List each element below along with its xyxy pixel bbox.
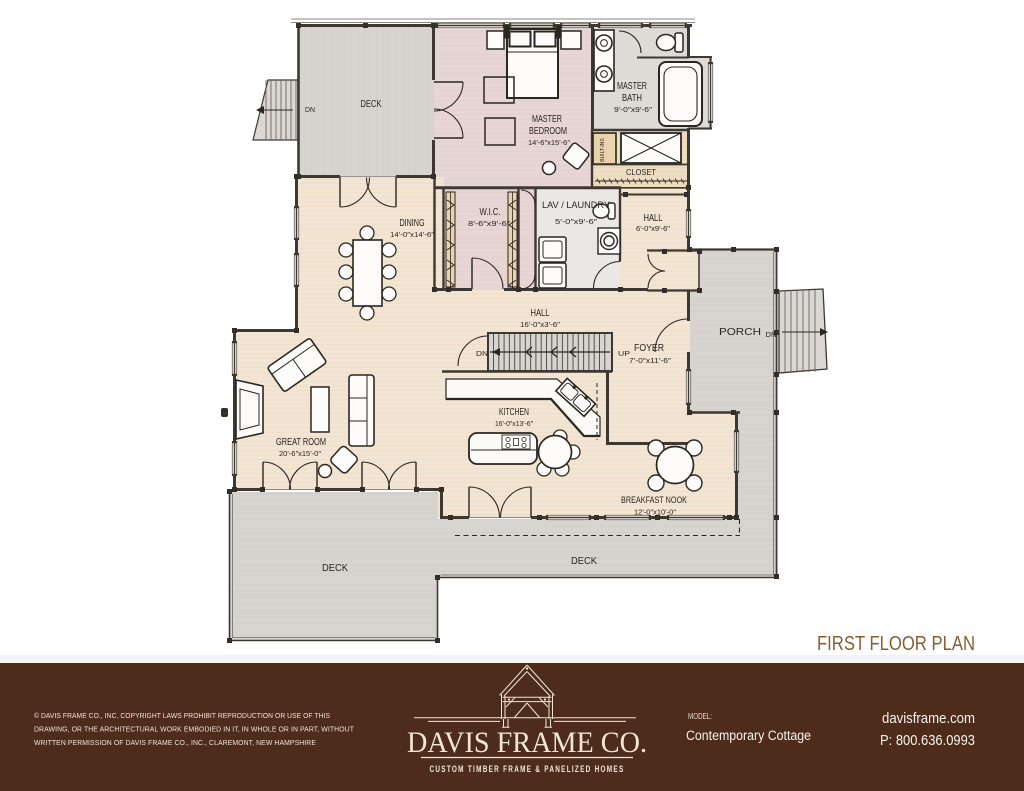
svg-text:HALL: HALL [644,213,663,224]
svg-text:DN: DN [766,330,777,339]
svg-text:BUILT-INS: BUILT-INS [600,138,606,162]
svg-text:© DAVIS FRAME CO., INC. COPYRI: © DAVIS FRAME CO., INC. COPYRIGHT LAWS P… [34,711,330,720]
svg-text:DN: DN [305,105,315,114]
svg-text:KITCHEN: KITCHEN [499,407,529,418]
svg-text:PORCH: PORCH [719,327,761,338]
svg-text:CUSTOM TIMBER FRAME & PANELIZE: CUSTOM TIMBER FRAME & PANELIZED HOMES [430,764,625,774]
svg-text:9′-0″x9′-6″: 9′-0″x9′-6″ [614,105,652,114]
svg-text:12′-0″x10′-0″: 12′-0″x10′-0″ [634,508,676,517]
svg-text:MASTER: MASTER [532,114,562,125]
svg-text:14′-6″x15′-6″: 14′-6″x15′-6″ [528,138,570,147]
svg-text:MASTER: MASTER [617,81,647,92]
svg-text:HALL: HALL [531,308,550,319]
svg-text:5′-0″x9′-6″: 5′-0″x9′-6″ [555,217,597,226]
svg-text:FOYER: FOYER [634,343,664,354]
svg-text:DECK: DECK [571,556,597,567]
svg-text:DECK: DECK [322,563,348,574]
svg-text:W.I.C.: W.I.C. [480,207,501,218]
svg-text:LAV / LAUNDRY: LAV / LAUNDRY [542,200,610,210]
svg-text:CLOSET: CLOSET [626,167,656,177]
svg-text:DECK: DECK [361,99,382,110]
svg-text:DN: DN [476,349,488,358]
svg-text:MODEL:: MODEL: [688,712,712,721]
svg-text:P: 800.636.0993: P: 800.636.0993 [880,732,975,749]
svg-text:WRITTEN PERMISSION OF DAVIS FR: WRITTEN PERMISSION OF DAVIS FRAME CO., I… [34,738,316,747]
svg-text:7′-0″x11′-6″: 7′-0″x11′-6″ [629,356,671,365]
svg-text:davisframe.com: davisframe.com [882,710,975,727]
svg-text:16′-0″x13′-6″: 16′-0″x13′-6″ [495,419,533,428]
svg-text:BATH: BATH [622,93,642,104]
svg-text:BREAKFAST NOOK: BREAKFAST NOOK [621,495,687,505]
svg-text:BEDROOM: BEDROOM [529,126,567,137]
svg-text:DAVIS FRAME CO.: DAVIS FRAME CO. [407,726,647,759]
svg-text:8′-6″x9′-6″: 8′-6″x9′-6″ [468,219,510,228]
svg-text:20′-6″x15′-0″: 20′-6″x15′-0″ [279,449,321,458]
svg-text:6′-0″x9′-6″: 6′-0″x9′-6″ [636,224,670,233]
svg-text:FIRST FLOOR PLAN: FIRST FLOOR PLAN [817,632,975,655]
svg-text:DRAWING, OR THE ARCHITECTURAL: DRAWING, OR THE ARCHITECTURAL WORK EMBOD… [34,725,354,734]
svg-text:Contemporary Cottage: Contemporary Cottage [686,728,811,743]
svg-text:14′-0″x14′-6″: 14′-0″x14′-6″ [390,230,434,239]
svg-text:DINING: DINING [400,218,425,229]
svg-text:GREAT ROOM: GREAT ROOM [276,437,326,448]
svg-text:16′-0″x3′-6″: 16′-0″x3′-6″ [520,320,560,329]
